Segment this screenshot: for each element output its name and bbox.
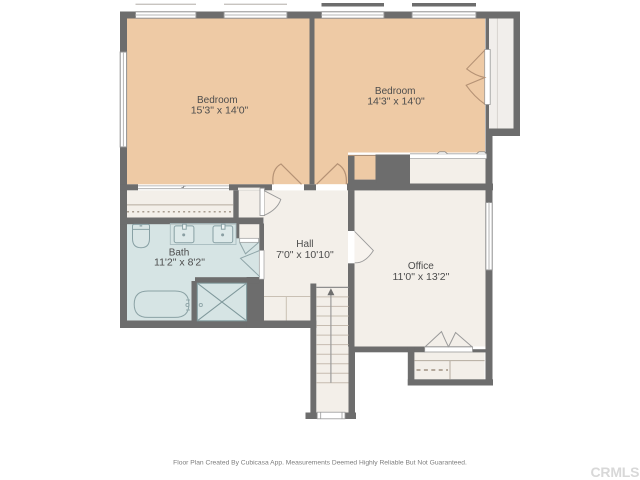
- svg-text:11'2" x 8'2": 11'2" x 8'2": [154, 256, 205, 268]
- svg-text:Floor Plan Created By Cubicasa: Floor Plan Created By Cubicasa App. Meas…: [173, 460, 467, 467]
- svg-text:14'3" x 14'0": 14'3" x 14'0": [367, 95, 425, 107]
- svg-text:7'0" x 10'10": 7'0" x 10'10": [276, 249, 334, 261]
- svg-text:15'3" x 14'0": 15'3" x 14'0": [191, 105, 249, 117]
- svg-text:11'0" x 13'2": 11'0" x 13'2": [392, 271, 449, 283]
- svg-text:CRMLS: CRMLS: [591, 464, 640, 480]
